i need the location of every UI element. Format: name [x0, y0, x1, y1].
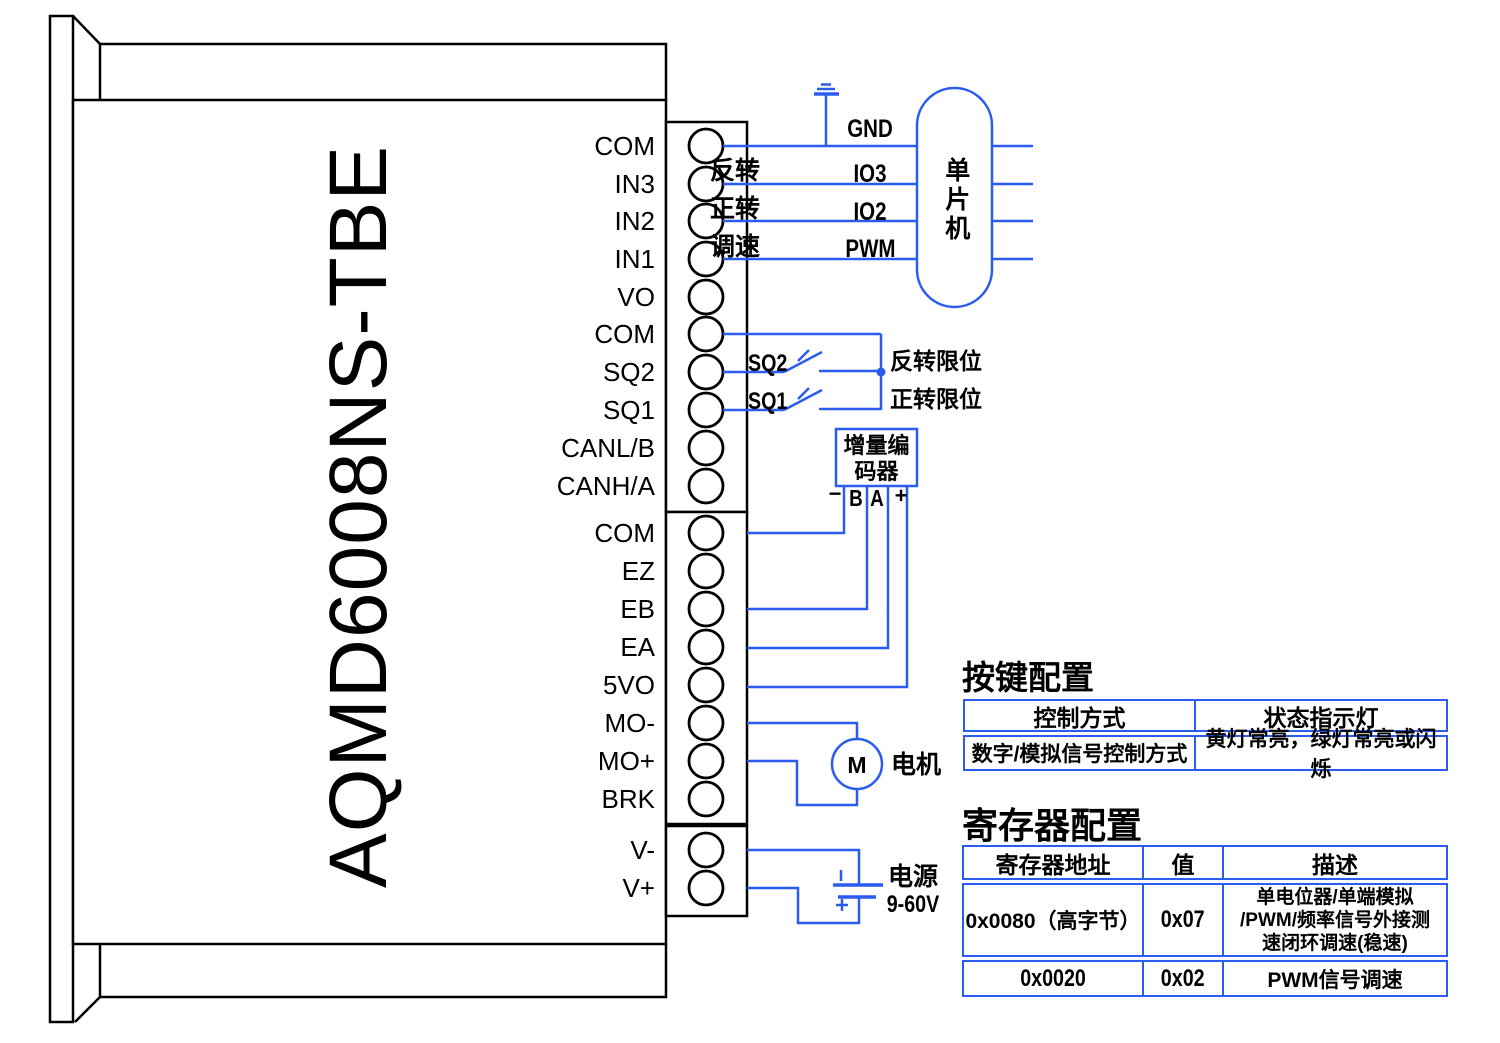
terminal-circle: [689, 393, 723, 427]
terminal-label-in1: IN1: [405, 243, 655, 275]
pin-label-io2: IO2: [845, 198, 894, 227]
bottom-flange-bevel: [75, 997, 100, 1022]
regs-cell-value-1: 0x07: [1142, 885, 1222, 955]
forward-limit-label: 正转限位: [890, 386, 982, 412]
sq2-switch-label: SQ2: [748, 350, 787, 378]
terminal-circle: [689, 744, 723, 778]
regs-table-header-row: 寄存器地址 值 描述: [962, 845, 1448, 880]
terminal-circle: [689, 630, 723, 664]
encoder-label: 增量编 码器: [837, 433, 916, 485]
mcu-label: 单片机: [941, 157, 970, 252]
keys-cell-status-led: 黄灯常亮，绿灯常亮或闪烁: [1194, 737, 1446, 769]
sq1-switch-label: SQ1: [748, 388, 787, 416]
din-bracket: [50, 16, 73, 1022]
regs-header-address: 寄存器地址: [964, 847, 1142, 878]
regs-value-1-text: 0x07: [1161, 906, 1205, 934]
encoder-pin-minus: −: [826, 481, 844, 506]
action-label-forward: 正转: [710, 195, 760, 224]
terminal-circle: [689, 280, 723, 314]
keys-table-data-row: 数字/模拟信号控制方式 黄灯常亮，绿灯常亮或闪烁: [963, 735, 1448, 771]
top-flange: [100, 44, 666, 100]
terminal-circle: [689, 592, 723, 626]
terminal-label-sq2: SQ2: [405, 356, 655, 388]
power-range-label: 9-60V: [886, 891, 940, 919]
regs-header-desc: 描述: [1222, 847, 1446, 878]
terminal-label-canha: CANH/A: [405, 470, 655, 502]
motor-label: 电机: [891, 751, 941, 780]
battery-plus-mark: [836, 899, 848, 911]
terminal-circle: [689, 782, 723, 816]
terminal-label-mo-minus: MO-: [405, 707, 655, 739]
terminal-label-canlb: CANL/B: [405, 432, 655, 464]
terminal-circle: [689, 554, 723, 588]
pin-label-io3: IO3: [845, 160, 894, 189]
regs-cell-address-1: 0x0080（高字节）: [964, 885, 1142, 955]
terminal-label-ea: EA: [405, 631, 655, 663]
terminal-circle: [689, 668, 723, 702]
terminal-label-brk: BRK: [405, 783, 655, 815]
keys-table-title: 按键配置: [962, 659, 1094, 697]
terminal-label-com-1: COM: [405, 130, 655, 162]
regs-cell-value-2: 0x02: [1142, 962, 1222, 995]
terminal-circle: [689, 317, 723, 351]
pin-label-pwm: PWM: [845, 235, 894, 264]
regs-cell-address-2: 0x0020: [964, 962, 1142, 995]
terminal-circle: [689, 706, 723, 740]
terminal-circle: [689, 355, 723, 389]
terminal-circle: [689, 516, 723, 550]
terminal-circle: [689, 431, 723, 465]
gnd-label: GND: [845, 115, 894, 144]
terminal-label-eb: EB: [405, 593, 655, 625]
terminal-label-5vo: 5VO: [405, 669, 655, 701]
action-label-speed: 调速: [710, 233, 760, 262]
device-model-label: AQMD6008NS-TBE: [309, 148, 409, 888]
terminal-label-v-plus: V+: [405, 872, 655, 904]
wire-encoder-plus: [747, 486, 907, 687]
regs-header-value: 值: [1142, 847, 1222, 878]
wiring-diagram-page: AQMD6008NS-TBE COM IN3 IN2 IN1 VO COM SQ…: [0, 0, 1500, 1043]
encoder-pin-b: B: [848, 485, 864, 511]
power-label: 电源: [888, 863, 938, 892]
keys-header-control-mode: 控制方式: [965, 701, 1194, 730]
bottom-flange: [100, 944, 666, 997]
keys-cell-control-mode: 数字/模拟信号控制方式: [965, 737, 1194, 769]
terminal-label-vo: VO: [405, 281, 655, 313]
encoder-pin-a: A: [869, 485, 885, 511]
wire-mo-minus: [747, 723, 857, 739]
regs-cell-desc-1: 单电位器/单端模拟 /PWM/频率信号外接测 速闭环调速(稳速): [1222, 885, 1446, 955]
regs-table-row-2: 0x0020 0x02 PWM信号调速: [962, 960, 1448, 997]
regs-cell-desc-2: PWM信号调速: [1222, 962, 1446, 995]
terminal-circle: [689, 833, 723, 867]
action-label-reverse: 反转: [710, 157, 760, 186]
reverse-limit-label: 反转限位: [890, 348, 982, 374]
terminal-circle: [689, 871, 723, 905]
junction-dot: [877, 368, 886, 377]
terminal-label-in2: IN2: [405, 205, 655, 237]
terminal-label-com-2: COM: [405, 318, 655, 350]
terminal-circle: [689, 469, 723, 503]
mcu-right-stubs: [992, 146, 1033, 259]
regs-address-2-text: 0x0020: [1020, 965, 1086, 993]
motor-symbol: M: [844, 752, 870, 778]
encoder-pin-plus: +: [892, 483, 910, 508]
regs-table-title: 寄存器配置: [962, 805, 1142, 846]
terminal-label-sq1: SQ1: [405, 394, 655, 426]
terminal-label-mo-plus: MO+: [405, 745, 655, 777]
top-flange-bevel: [73, 16, 100, 44]
regs-value-2-text: 0x02: [1161, 965, 1205, 993]
regs-table-row-1: 0x0080（高字节） 0x07 单电位器/单端模拟 /PWM/频率信号外接测 …: [962, 883, 1448, 957]
terminal-label-v-minus: V-: [405, 834, 655, 866]
terminal-label-ez: EZ: [405, 555, 655, 587]
terminal-label-in3: IN3: [405, 168, 655, 200]
terminal-label-com-3: COM: [405, 517, 655, 549]
